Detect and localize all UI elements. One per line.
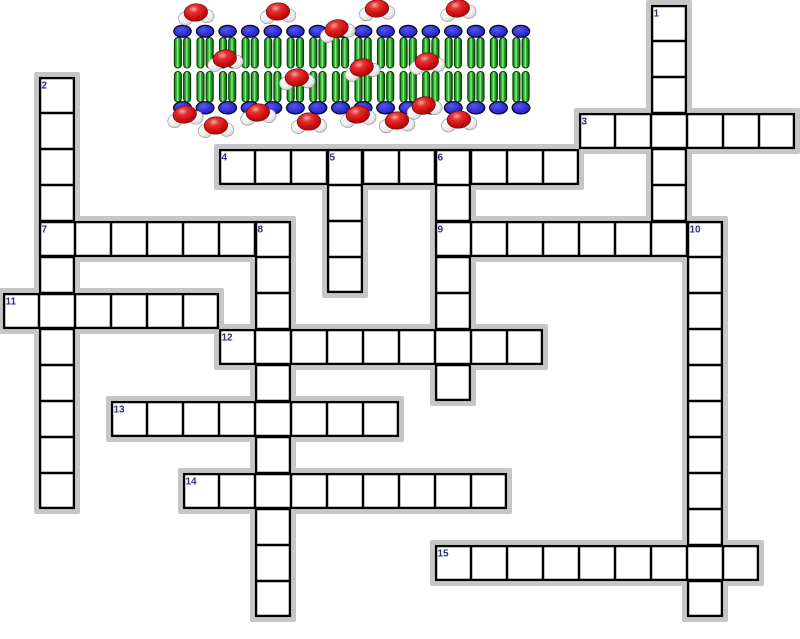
svg-text:13: 13 (114, 405, 126, 416)
svg-text:5: 5 (330, 153, 336, 164)
svg-text:8: 8 (258, 225, 264, 236)
svg-text:7: 7 (42, 225, 48, 236)
svg-text:10: 10 (690, 225, 702, 236)
svg-text:14: 14 (186, 477, 198, 488)
svg-text:15: 15 (438, 549, 450, 560)
svg-text:4: 4 (222, 153, 228, 164)
svg-text:6: 6 (438, 153, 444, 164)
svg-text:11: 11 (6, 297, 17, 308)
svg-text:1: 1 (654, 9, 660, 20)
svg-text:12: 12 (222, 333, 234, 344)
svg-text:2: 2 (42, 81, 48, 92)
svg-text:9: 9 (438, 225, 444, 236)
svg-text:3: 3 (582, 117, 588, 128)
